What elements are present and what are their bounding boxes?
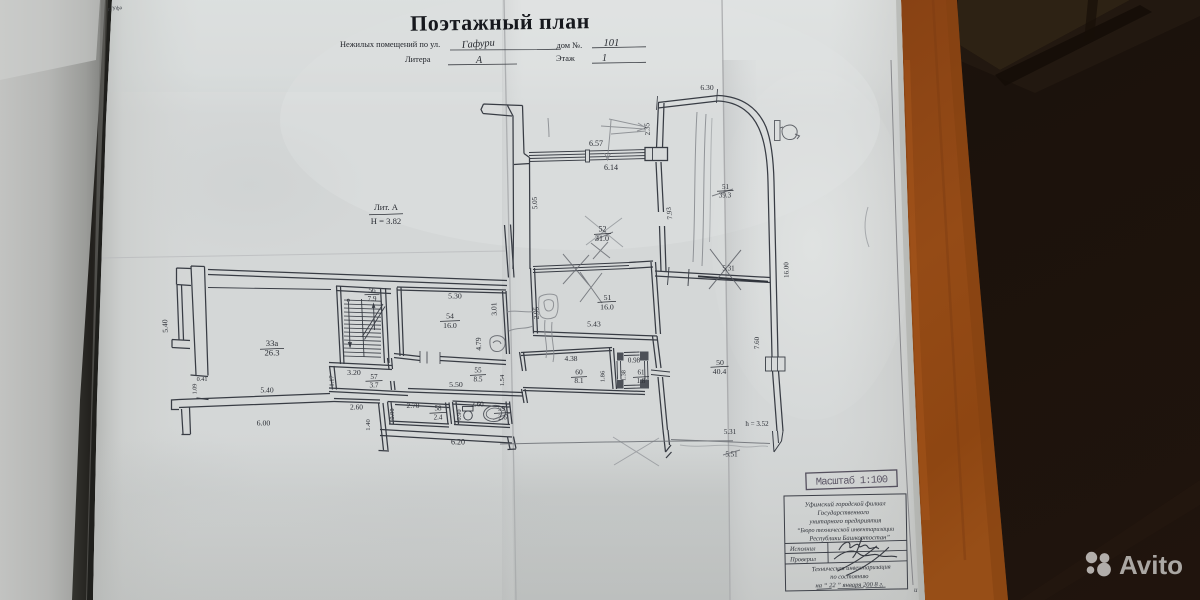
svg-text:7.93: 7.93 (665, 206, 674, 220)
svg-text:2.95: 2.95 (532, 306, 540, 319)
svg-text:6.30: 6.30 (700, 83, 713, 92)
svg-text:3.01: 3.01 (489, 302, 498, 316)
svg-text:Н = 3.82: Н = 3.82 (371, 216, 401, 226)
svg-text:56: 56 (368, 287, 376, 295)
svg-text:39.3: 39.3 (719, 192, 732, 200)
svg-text:3.7: 3.7 (370, 382, 379, 390)
svg-text:5.43: 5.43 (587, 320, 601, 329)
svg-text:и: и (914, 586, 918, 594)
svg-text:Государственного: Государственного (816, 509, 869, 517)
svg-text:1.54: 1.54 (499, 374, 506, 386)
svg-text:16.0: 16.0 (600, 303, 614, 312)
svg-text:5.30: 5.30 (448, 292, 462, 301)
svg-text:1.17: 1.17 (329, 375, 336, 387)
svg-text:4.79: 4.79 (474, 337, 483, 351)
svg-text:1.40: 1.40 (365, 419, 372, 431)
svg-text:1.09: 1.09 (192, 384, 199, 395)
svg-text:Нежилых помещений по ул.: Нежилых помещений по ул. (340, 40, 440, 49)
svg-text:2.4: 2.4 (434, 414, 443, 422)
svg-text:5.05: 5.05 (531, 196, 539, 209)
svg-text:2.35: 2.35 (643, 122, 652, 135)
svg-text:1.86: 1.86 (600, 370, 607, 382)
svg-text:4.38: 4.38 (565, 354, 578, 363)
svg-text:40.4: 40.4 (713, 367, 727, 376)
svg-text:54: 54 (446, 312, 454, 321)
svg-text:Литера: Литера (405, 55, 431, 64)
svg-text:0.41: 0.41 (197, 376, 208, 383)
svg-text:6.00: 6.00 (257, 419, 271, 428)
svg-text:8.5: 8.5 (474, 376, 483, 384)
svg-text:51: 51 (722, 183, 730, 191)
svg-text:61: 61 (638, 369, 646, 377)
svg-text:Лит. А: Лит. А (374, 202, 399, 212)
svg-text:0.98: 0.98 (628, 357, 641, 365)
svg-text:16.00: 16.00 (782, 262, 790, 278)
svg-text:52: 52 (599, 225, 607, 234)
svg-text:33а: 33а (266, 338, 279, 348)
svg-text:Исполнил: Исполнил (789, 545, 816, 552)
svg-text:1: 1 (602, 53, 607, 64)
svg-text:59: 59 (498, 406, 505, 413)
svg-text:7.60: 7.60 (753, 336, 761, 349)
svg-text:3.20: 3.20 (347, 368, 361, 377)
svg-text:Проверил: Проверил (789, 556, 816, 563)
svg-text:6.57: 6.57 (589, 139, 603, 148)
svg-text:55: 55 (474, 367, 482, 375)
svg-text:2.70: 2.70 (407, 401, 420, 410)
svg-text:5.31: 5.31 (724, 428, 737, 436)
svg-text:5.51: 5.51 (725, 451, 738, 459)
svg-text:2.60: 2.60 (471, 401, 484, 409)
svg-text:16.0: 16.0 (443, 321, 457, 330)
svg-text:2.60: 2.60 (350, 403, 363, 412)
svg-text:6.20: 6.20 (451, 438, 465, 447)
svg-text:Avito: Avito (1119, 550, 1183, 580)
svg-text:31.0: 31.0 (595, 234, 609, 243)
svg-text:57: 57 (370, 373, 378, 381)
svg-text:по состоянию: по состоянию (830, 573, 869, 581)
svg-text:7.9: 7.9 (368, 295, 377, 303)
svg-text:58: 58 (435, 405, 443, 413)
svg-text:51: 51 (604, 293, 612, 302)
svg-text:h = 3.52: h = 3.52 (745, 420, 769, 428)
svg-text:5.50: 5.50 (449, 380, 463, 389)
svg-text:5.31: 5.31 (722, 265, 735, 273)
svg-text:1.8: 1.8 (637, 377, 646, 385)
svg-text:2.6: 2.6 (498, 415, 507, 422)
svg-text:5.40: 5.40 (260, 386, 273, 395)
svg-text:6.14: 6.14 (604, 163, 618, 172)
svg-text:0.90: 0.90 (456, 409, 463, 420)
svg-text:Этаж: Этаж (556, 54, 575, 63)
svg-text:0.90: 0.90 (389, 408, 396, 419)
svg-text:50: 50 (716, 358, 724, 367)
svg-text:Поэтажный план: Поэтажный план (410, 8, 590, 36)
svg-text:5.40: 5.40 (160, 319, 170, 333)
svg-text:Уфимский городской филиал: Уфимский городской филиал (805, 500, 886, 508)
svg-text:Масштаб 1:100: Масштаб 1:100 (816, 473, 888, 489)
svg-text:унитарного предприятия: унитарного предприятия (808, 517, 881, 525)
svg-text:дом №.: дом №. (557, 41, 583, 50)
svg-text:1.38: 1.38 (621, 370, 628, 381)
